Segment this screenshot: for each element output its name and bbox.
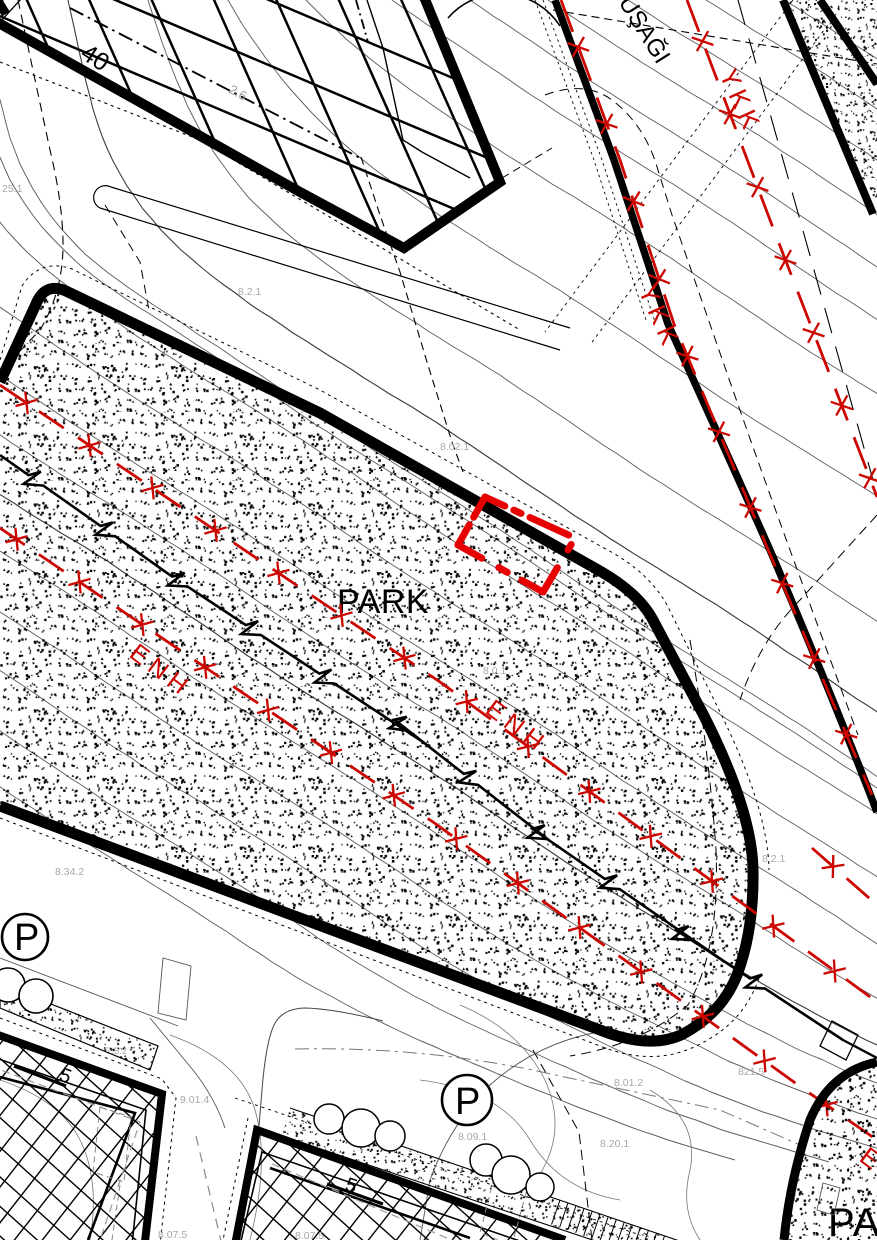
svg-text:8.0.1: 8.0.1 (483, 665, 507, 677)
svg-text:8.2.1: 8.2.1 (762, 853, 786, 865)
svg-text:8.02.1: 8.02.1 (440, 441, 469, 453)
svg-text:8.01.2: 8.01.2 (614, 1077, 643, 1089)
svg-text:25.1: 25.1 (2, 183, 23, 195)
svg-text:8.34.2: 8.34.2 (55, 866, 84, 878)
svg-text:8.20.1: 8.20.1 (600, 1138, 629, 1150)
svg-text:P: P (455, 1081, 480, 1123)
svg-text:8.09.1: 8.09.1 (458, 1131, 487, 1143)
svg-text:PARK: PARK (337, 583, 429, 621)
svg-text:821.5: 821.5 (738, 1066, 764, 1078)
svg-text:P: P (14, 917, 39, 959)
svg-text:PA: PA (828, 1201, 877, 1240)
svg-text:8.2.1: 8.2.1 (238, 286, 262, 298)
svg-text:9.01.4: 9.01.4 (180, 1094, 209, 1106)
svg-text:8.07.5: 8.07.5 (158, 1229, 187, 1240)
svg-text:8.07.5: 8.07.5 (295, 1230, 324, 1240)
